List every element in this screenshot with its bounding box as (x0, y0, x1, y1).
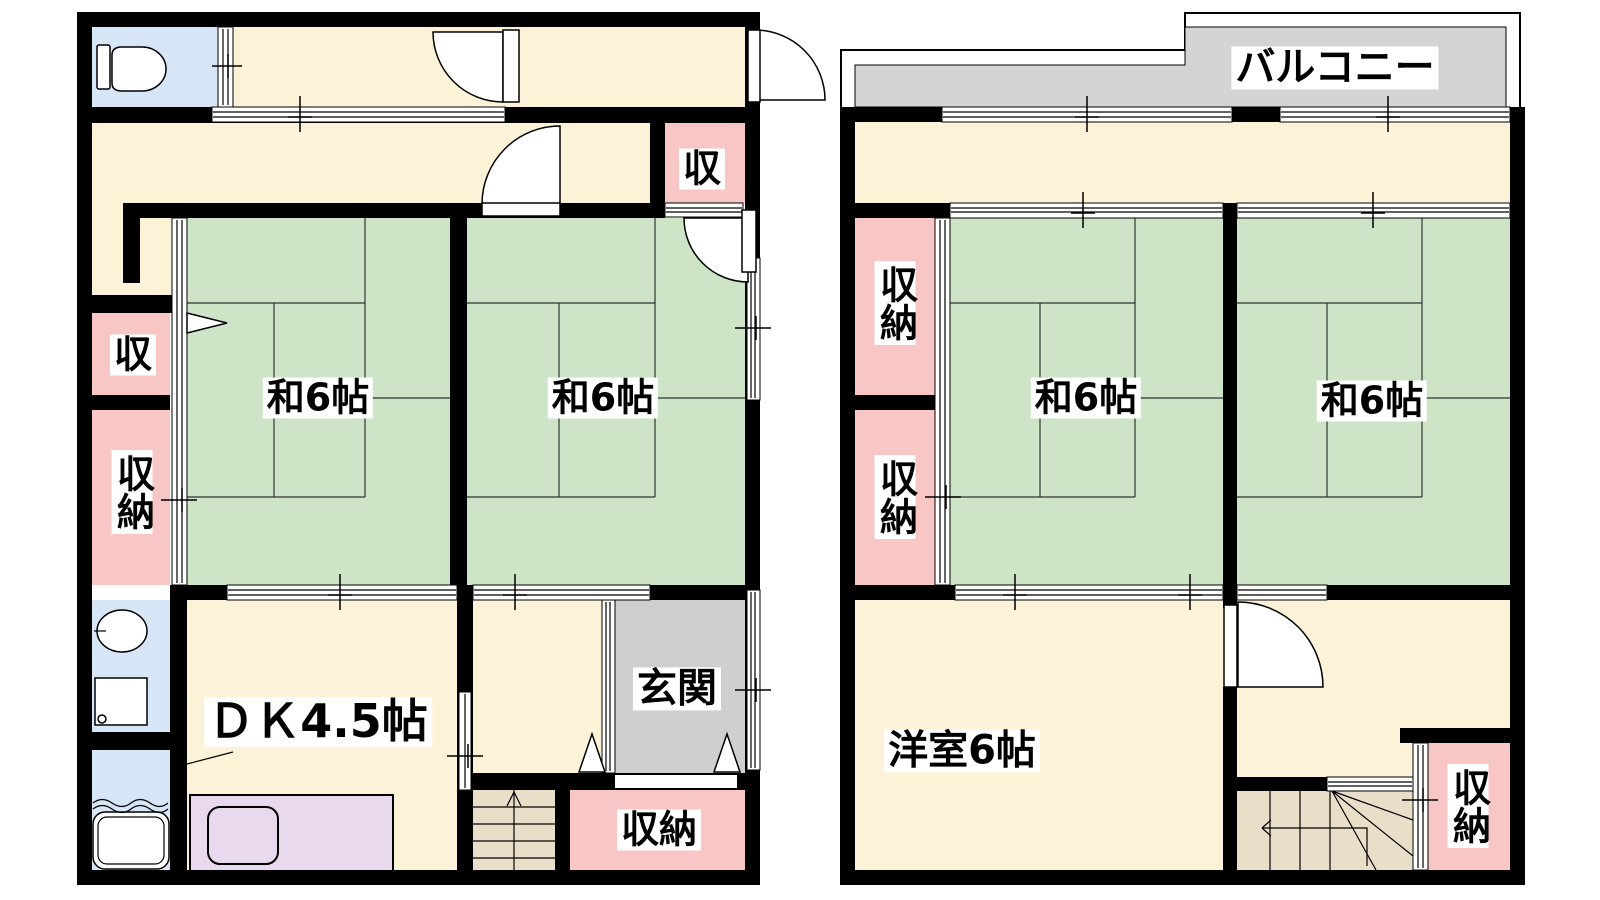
room-hallway (92, 123, 650, 203)
label-washitsu1-1f: 和6帖 (263, 377, 373, 418)
label-washitsu1-2f: 和6帖 (1031, 377, 1141, 418)
label-storage3-2f: 収納 (1447, 764, 1488, 848)
label-storage-ll-1f: 収納 (111, 450, 152, 534)
label-genkan: 玄関 (633, 667, 721, 710)
label-washitsu2-1f: 和6帖 (548, 377, 658, 418)
room-hallway-2f (855, 122, 1510, 203)
genkan-opening (615, 775, 737, 788)
label-storage2-2f: 収納 (874, 455, 915, 539)
toilet-bowl-icon (112, 47, 166, 91)
label-storage-ul-1f: 収 (110, 334, 156, 375)
label-washitsu2-2f: 和6帖 (1317, 380, 1427, 421)
bathtub-icon (93, 812, 169, 869)
door-arc (755, 30, 825, 100)
floorplan-drawing (0, 0, 1600, 900)
label-dk: ＤＫ4.5帖 (204, 697, 432, 747)
label-storage-b-1f: 収納 (617, 809, 701, 850)
label-balcony: バルコニー (1231, 46, 1438, 89)
stairs-2f (1237, 791, 1413, 870)
floor1-plan (77, 12, 825, 885)
room-bottom-hall (457, 600, 602, 790)
label-youshitsu: 洋室6帖 (884, 729, 1040, 772)
label-storage-ur-1f: 収 (679, 148, 725, 189)
floorplan-image: 収 収納 和6帖 和6帖 収 ＤＫ4.5帖 玄関 収納 バルコニー 収納 収納 … (0, 0, 1600, 900)
toilet-tank-icon (97, 45, 110, 89)
label-storage1-2f: 収納 (874, 261, 915, 345)
